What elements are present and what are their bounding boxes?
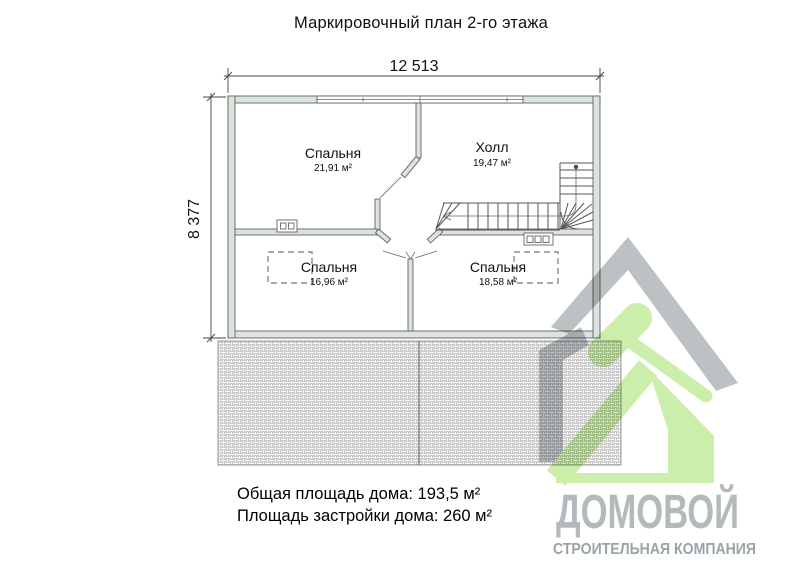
- footprint-area-line: Площадь застройки дома: 260 м²: [237, 505, 492, 527]
- logo-company-name: ДОМОВОЙ: [556, 485, 739, 540]
- company-logo: [0, 0, 800, 566]
- area-summary: Общая площадь дома: 193,5 м² Площадь зас…: [237, 483, 492, 527]
- logo-tagline: СТРОИТЕЛЬНАЯ КОМПАНИЯ: [553, 541, 756, 559]
- floor-plan-sheet: Маркировочный план 2-го этажа 12 513: [0, 0, 800, 566]
- total-area-line: Общая площадь дома: 193,5 м²: [237, 483, 492, 505]
